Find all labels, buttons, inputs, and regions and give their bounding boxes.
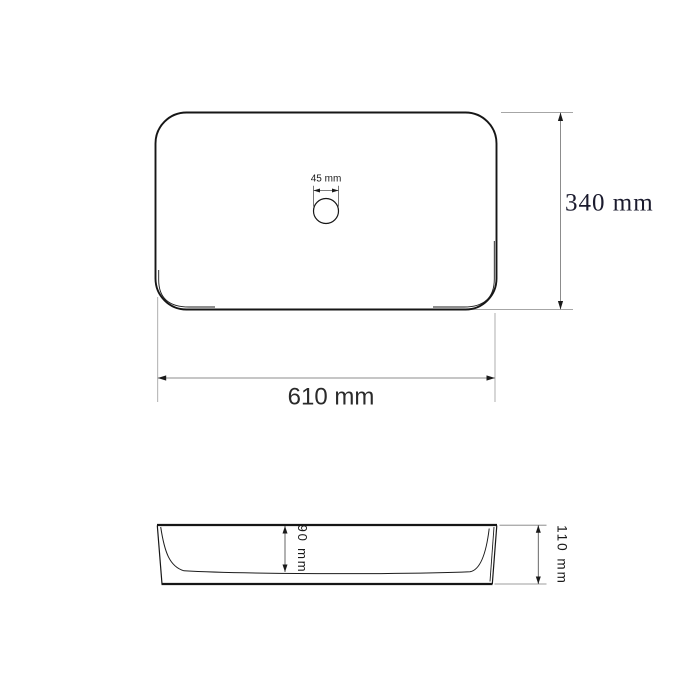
length-dimension: 610 mm xyxy=(158,375,495,410)
height-dimension: 110 mm xyxy=(495,525,570,585)
drain-diameter-label: 45 mm xyxy=(311,174,342,185)
length-dim-arrow-right xyxy=(487,375,496,380)
height-dim-arrow-top xyxy=(536,525,541,533)
profile-right-wall xyxy=(492,526,497,585)
height-dim-arrow-bottom xyxy=(536,577,541,585)
side-view: 90 mm 110 mm xyxy=(157,525,570,585)
profile-left-wall xyxy=(157,526,162,585)
length-dim-arrow-left xyxy=(158,375,167,380)
drawing-canvas: 45 mm 340 mm 610 mm xyxy=(0,0,700,700)
depth-dim-arrow-bottom xyxy=(283,565,288,573)
basin-bottom-curve xyxy=(161,527,490,574)
sink-technical-drawing: 45 mm 340 mm 610 mm xyxy=(0,0,700,700)
length-label: 610 mm xyxy=(288,384,375,411)
width-label: 340 mm xyxy=(565,190,654,217)
basin-rim-outline xyxy=(156,113,497,310)
width-dimension: 340 mm xyxy=(558,113,654,310)
depth-dim-arrow-top xyxy=(283,526,288,534)
depth-label: 90 mm xyxy=(295,525,310,574)
height-label: 110 mm xyxy=(555,525,570,585)
top-view: 45 mm 340 mm 610 mm xyxy=(156,113,654,411)
width-dim-arrow-top xyxy=(558,113,563,122)
width-dim-arrow-bottom xyxy=(558,301,563,310)
depth-dimension: 90 mm xyxy=(283,525,311,574)
